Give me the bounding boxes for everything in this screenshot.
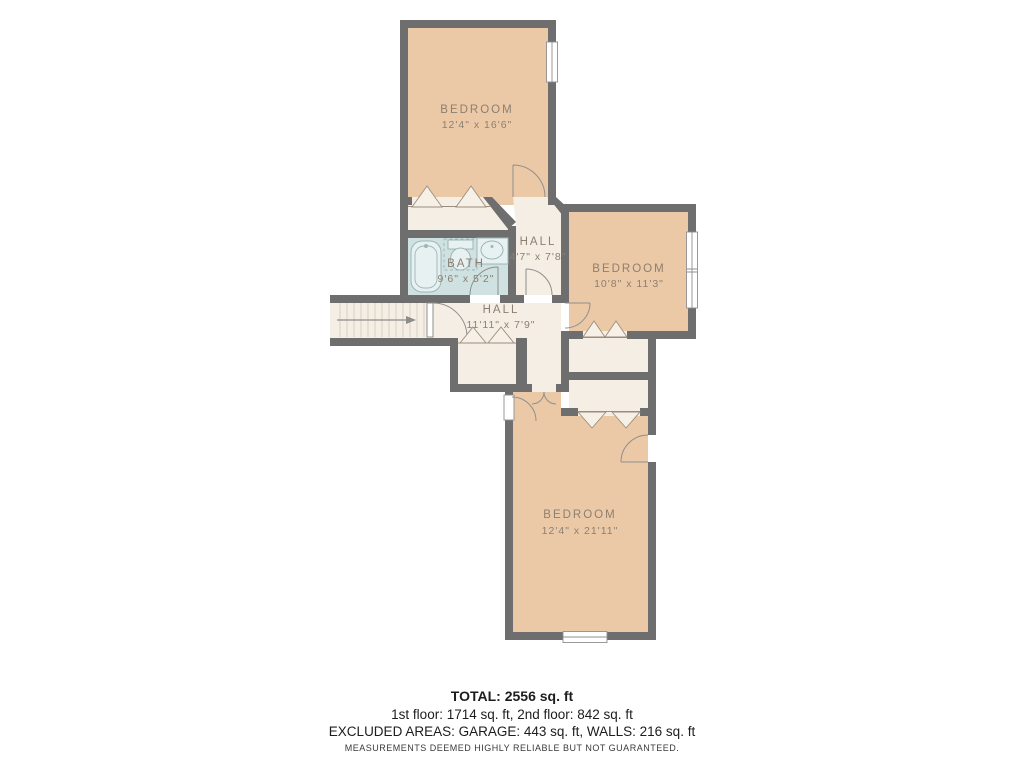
footer-excluded-areas: EXCLUDED AREAS: GARAGE: 443 sq. ft, WALL…	[329, 724, 696, 739]
footer: TOTAL: 2556 sq. ft 1st floor: 1714 sq. f…	[329, 688, 696, 753]
wall	[561, 408, 578, 416]
wall	[648, 408, 656, 435]
room-hall-closet	[458, 338, 516, 384]
footer-total: TOTAL: 2556 sq. ft	[451, 688, 574, 704]
wall	[330, 338, 458, 346]
dims-bedroom-bottom: 12'4" x 21'11"	[542, 525, 619, 537]
wall	[400, 20, 556, 28]
bathtub	[411, 241, 441, 292]
dims-bedroom-right: 10'8" x 11'3"	[594, 278, 664, 290]
wall	[505, 420, 513, 640]
label-bath: BATH	[447, 258, 485, 270]
wall	[561, 331, 583, 339]
room-bedroom-top	[408, 28, 548, 205]
wall	[648, 462, 656, 640]
window-bedroom-bottom	[563, 632, 607, 643]
floor-plan-page: BEDROOM 12'4" x 16'6" BATH 9'6" x 5'2" H…	[0, 0, 1024, 768]
footer-disclaimer: MEASUREMENTS DEEMED HIGHLY RELIABLE BUT …	[345, 743, 679, 753]
dims-bedroom-top: 12'4" x 16'6"	[442, 119, 513, 131]
dims-bath: 9'6" x 5'2"	[438, 273, 495, 285]
wall	[508, 226, 516, 303]
window-bedroom-right	[687, 232, 698, 308]
dims-hall-main: 11'11" x 7'9"	[466, 319, 535, 331]
label-bedroom-bottom: BEDROOM	[543, 509, 616, 521]
window-bedroom-top	[547, 42, 558, 82]
wall	[400, 230, 516, 238]
room-corridor	[527, 338, 561, 392]
wall	[505, 384, 513, 395]
wall	[561, 204, 696, 212]
room-closet-b	[569, 380, 648, 408]
wall	[556, 384, 569, 392]
wall	[500, 295, 524, 303]
wall	[627, 331, 696, 339]
wall	[400, 197, 412, 205]
floor-plan-drawing: BEDROOM 12'4" x 16'6" BATH 9'6" x 5'2" H…	[0, 0, 1024, 768]
label-bedroom-right: BEDROOM	[592, 263, 665, 275]
dims-hall-upper: 4'7" x 7'8"	[510, 251, 567, 263]
wall	[648, 339, 656, 416]
label-hall-upper: HALL	[520, 236, 557, 248]
wall	[400, 20, 408, 303]
wall	[569, 372, 648, 380]
wall	[330, 295, 470, 303]
label-hall-main: HALL	[483, 304, 520, 316]
opening-bedroom-bottom-left	[504, 395, 514, 420]
wall	[450, 384, 532, 392]
wall	[450, 338, 458, 392]
door-stairs-leaf	[427, 303, 433, 337]
footer-floors: 1st floor: 1714 sq. ft, 2nd floor: 842 s…	[391, 707, 633, 722]
wall	[516, 338, 527, 392]
label-bedroom-top: BEDROOM	[440, 104, 513, 116]
room-closet-a	[569, 339, 648, 372]
